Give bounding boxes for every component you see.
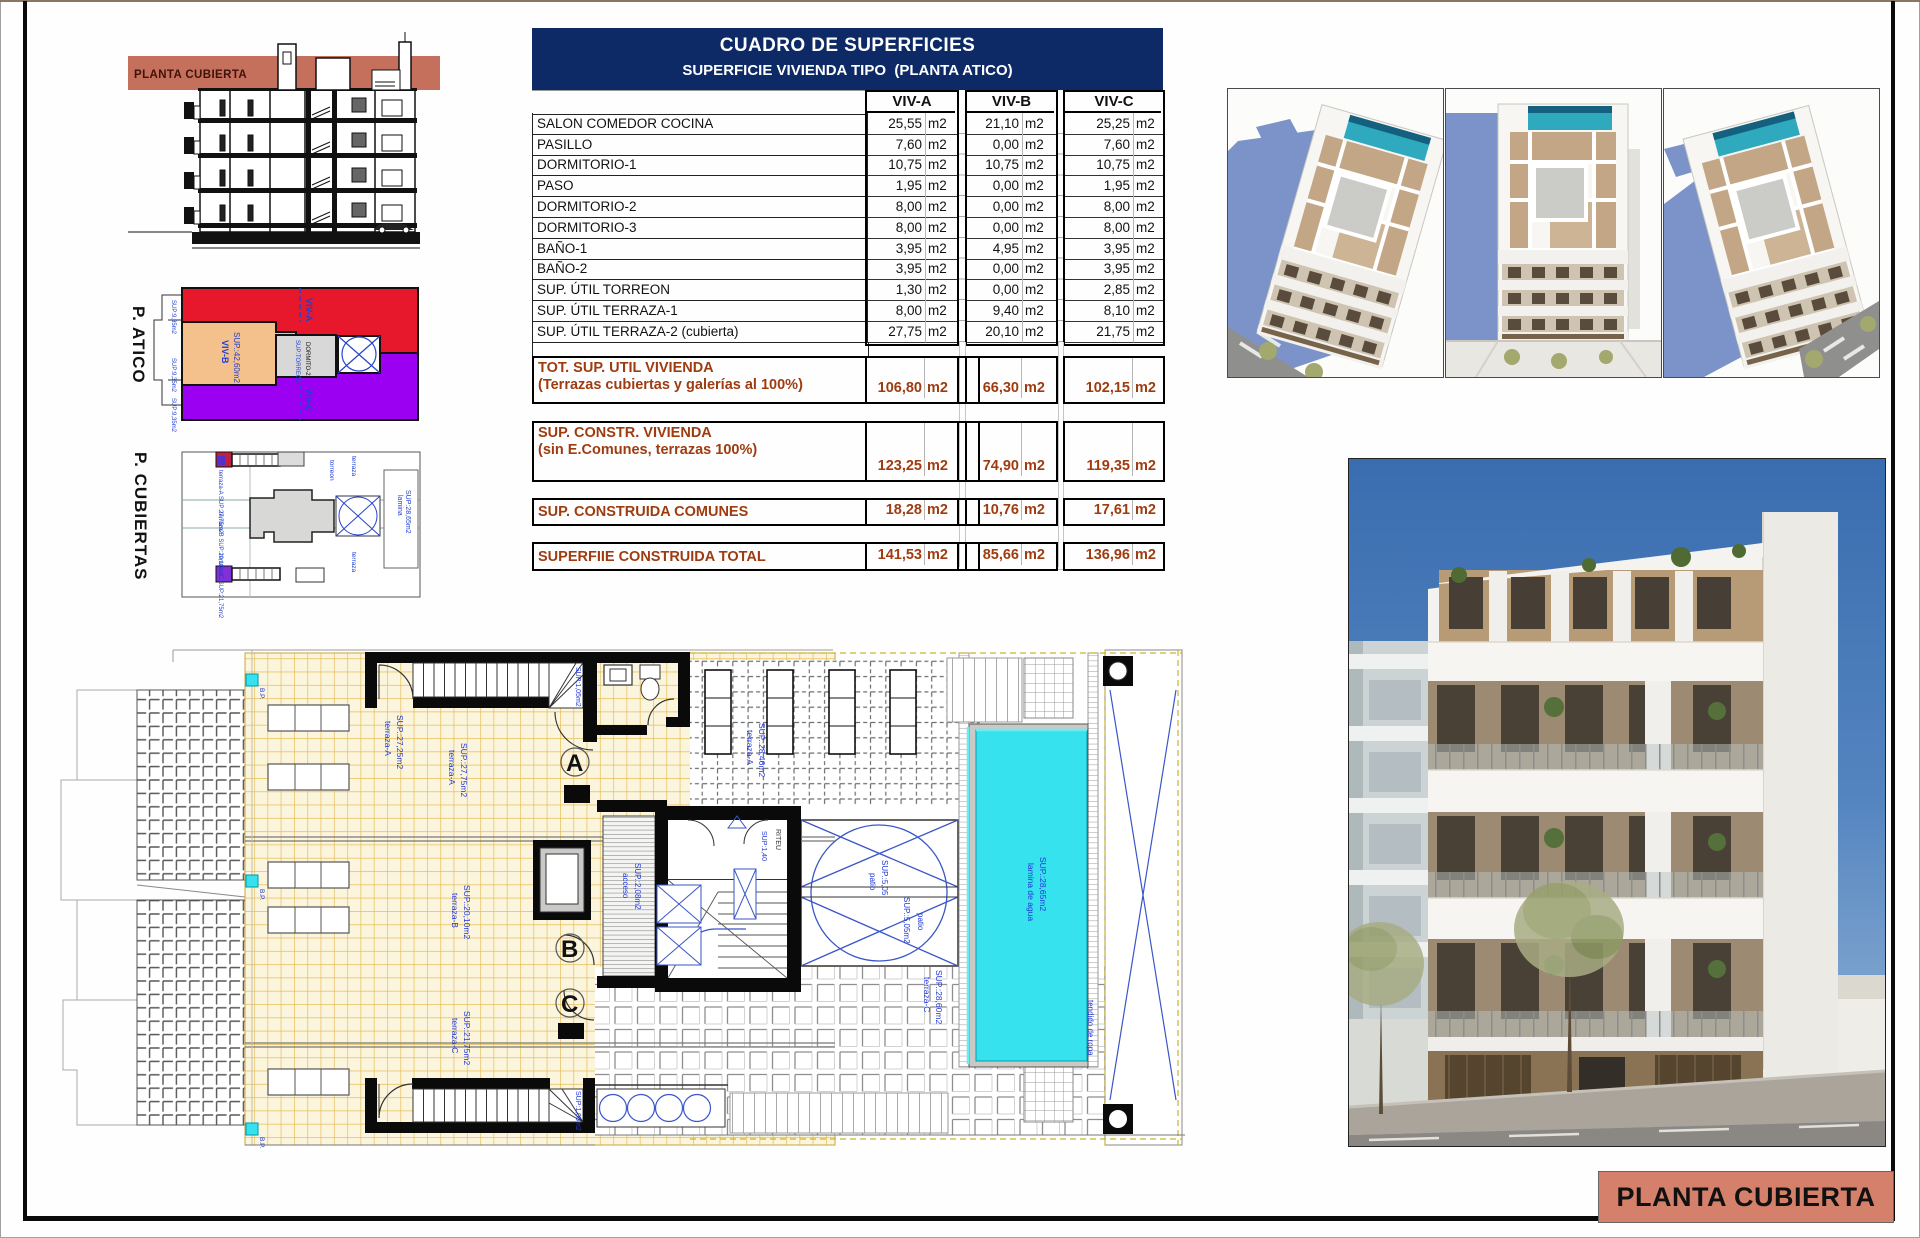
svg-text:VIV-A: VIV-A — [304, 298, 314, 322]
svg-text:terraza-C: terraza-C — [450, 1018, 460, 1053]
svg-text:lamina de agua: lamina de agua — [1026, 863, 1036, 921]
svg-text:DORMITO-2: DORMITO-2 — [304, 342, 310, 376]
svg-text:tendido de ropa: tendido de ropa — [1086, 1000, 1095, 1056]
svg-text:terraza-C: terraza-C — [922, 977, 932, 1012]
svg-text:patio: patio — [916, 913, 925, 931]
svg-text:lamina: lamina — [396, 495, 403, 516]
svg-text:RITEU: RITEU — [774, 829, 781, 850]
svg-text:SUP.:2,08m2: SUP.:2,08m2 — [633, 863, 642, 910]
svg-text:P. CUBIERTAS: P. CUBIERTAS — [131, 452, 150, 581]
svg-text:B.P.: B.P. — [258, 889, 265, 901]
svg-text:SUP:9,35m2: SUP:9,35m2 — [170, 300, 176, 335]
svg-text:SUP.:42,60m2: SUP.:42,60m2 — [232, 332, 241, 384]
svg-text:SUP.:28,46m2: SUP.:28,46m2 — [757, 723, 767, 777]
svg-text:SUP:1,05m2: SUP:1,05m2 — [574, 667, 581, 707]
svg-text:A: A — [566, 750, 583, 777]
svg-text:P. ATICO: P. ATICO — [129, 306, 148, 384]
svg-text:terraza: terraza — [350, 456, 357, 477]
svg-text:SUP.:27,75m2: SUP.:27,75m2 — [459, 743, 469, 797]
svg-text:SUP.:28,65m2: SUP.:28,65m2 — [1038, 857, 1048, 911]
svg-text:terraza-C SUP:21,75m2: terraza-C SUP:21,75m2 — [217, 554, 223, 619]
svg-text:patio: patio — [868, 873, 877, 891]
svg-text:terraza-A: terraza-A — [447, 750, 457, 785]
svg-text:SUP.:27,25m2: SUP.:27,25m2 — [395, 715, 405, 769]
svg-text:terraza-B: terraza-B — [450, 893, 460, 928]
svg-text:B.P.: B.P. — [258, 688, 265, 700]
svg-text:SUP:TORREON: SUP:TORREON — [294, 340, 300, 384]
svg-text:torreon: torreon — [328, 460, 335, 481]
svg-text:SUP:28,65m2: SUP:28,65m2 — [404, 490, 411, 534]
svg-text:SUP.:21,75m2: SUP.:21,75m2 — [462, 1011, 472, 1065]
svg-text:terraza: terraza — [350, 552, 357, 573]
svg-text:acceso: acceso — [621, 873, 630, 899]
svg-text:SUP:1,05m2: SUP:1,05m2 — [574, 1091, 581, 1131]
svg-text:VIV-B: VIV-B — [220, 340, 230, 364]
svg-text:B: B — [561, 936, 578, 963]
svg-text:terraza-A: terraza-A — [383, 721, 393, 756]
svg-text:SUP.:5,05m2: SUP.:5,05m2 — [902, 897, 911, 944]
svg-text:SUP.:28,60m2: SUP.:28,60m2 — [934, 970, 944, 1024]
svg-text:PLANTA CUBIERTA: PLANTA CUBIERTA — [134, 69, 247, 81]
svg-text:terraza-A: terraza-A — [745, 730, 755, 765]
svg-text:SUP:9,35m2: SUP:9,35m2 — [170, 358, 176, 393]
svg-text:SUP:1,40: SUP:1,40 — [760, 831, 767, 861]
svg-text:VIV-C: VIV-C — [304, 388, 314, 412]
svg-text:C: C — [561, 991, 578, 1018]
svg-text:SUP:9,35m2: SUP:9,35m2 — [170, 398, 176, 433]
svg-text:SUP.:20,10m2: SUP.:20,10m2 — [462, 885, 472, 939]
svg-text:B.P.: B.P. — [258, 1137, 265, 1149]
svg-text:SUP.:5,05: SUP.:5,05 — [880, 860, 889, 896]
